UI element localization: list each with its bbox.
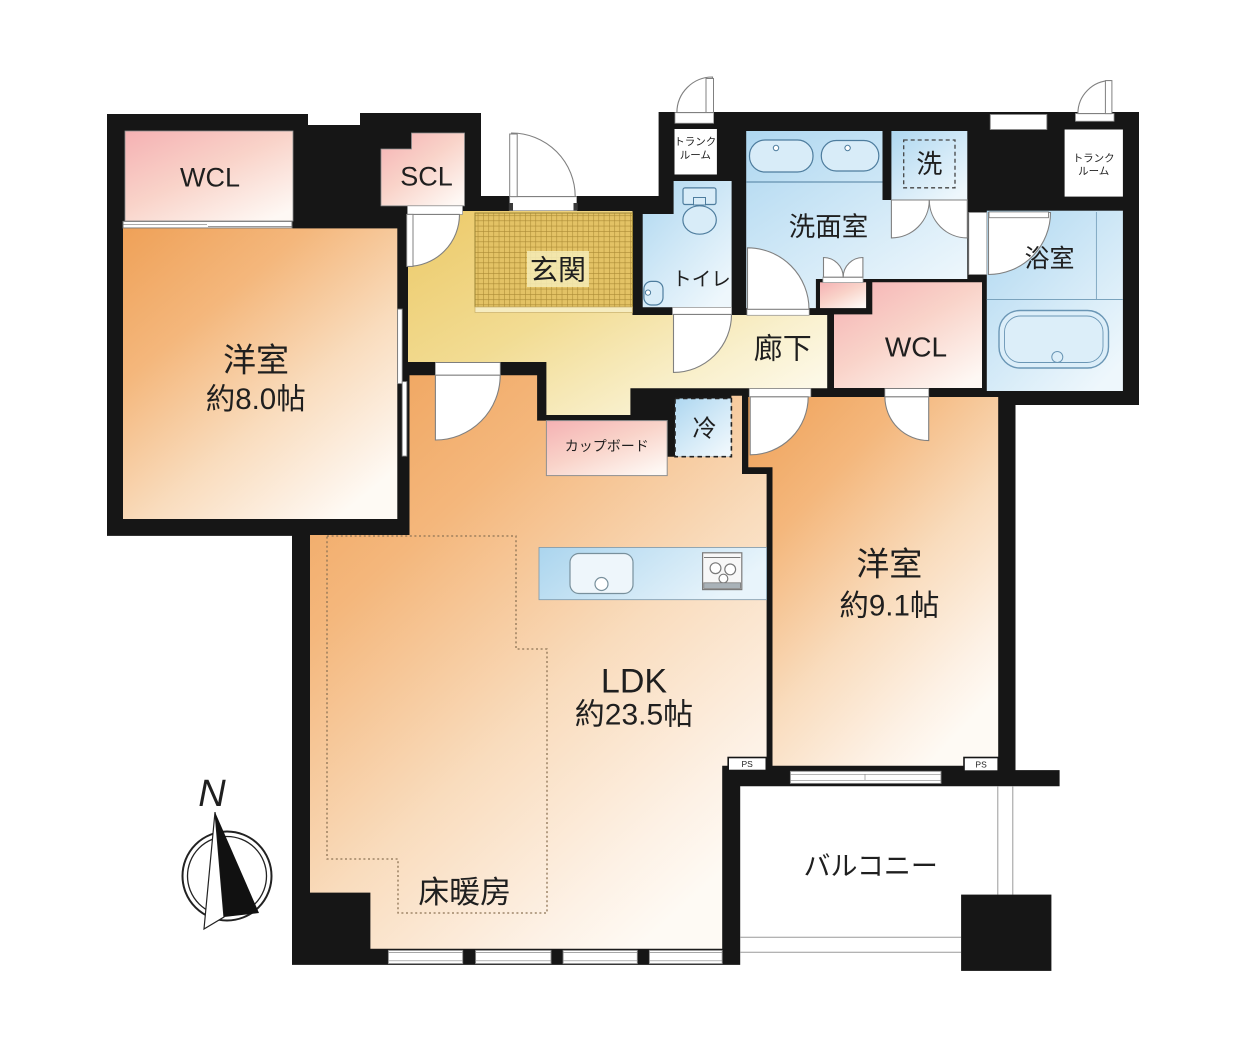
- svg-text:WCL: WCL: [885, 332, 947, 363]
- svg-text:PS: PS: [742, 759, 754, 769]
- svg-text:洗: 洗: [916, 149, 942, 179]
- svg-text:洗面室: 洗面室: [789, 212, 869, 242]
- svg-text:トイレ: トイレ: [672, 269, 731, 291]
- svg-text:LDK: LDK: [601, 663, 667, 701]
- svg-text:PS: PS: [975, 760, 987, 770]
- svg-text:床暖房: 床暖房: [418, 875, 511, 910]
- svg-text:WCL: WCL: [180, 163, 240, 193]
- svg-text:冷: 冷: [693, 416, 717, 443]
- svg-text:洋室: 洋室: [223, 342, 289, 379]
- svg-text:バルコニー: バルコニー: [803, 852, 937, 882]
- svg-text:トランク: トランク: [1073, 153, 1115, 165]
- svg-text:ルーム: ルーム: [680, 150, 711, 162]
- svg-text:洋室: 洋室: [856, 546, 922, 583]
- svg-text:浴室: 浴室: [1024, 245, 1074, 273]
- svg-text:トランク: トランク: [674, 136, 716, 148]
- svg-text:N: N: [198, 773, 226, 815]
- svg-text:廊下: 廊下: [754, 333, 812, 366]
- svg-text:約23.5帖: 約23.5帖: [575, 699, 693, 732]
- svg-text:約9.1帖: 約9.1帖: [839, 590, 939, 623]
- svg-text:ルーム: ルーム: [1078, 166, 1109, 178]
- svg-text:SCL: SCL: [400, 162, 453, 192]
- svg-text:カップボード: カップボード: [565, 438, 649, 454]
- svg-text:玄関: 玄関: [530, 255, 586, 286]
- svg-text:約8.0帖: 約8.0帖: [206, 383, 306, 416]
